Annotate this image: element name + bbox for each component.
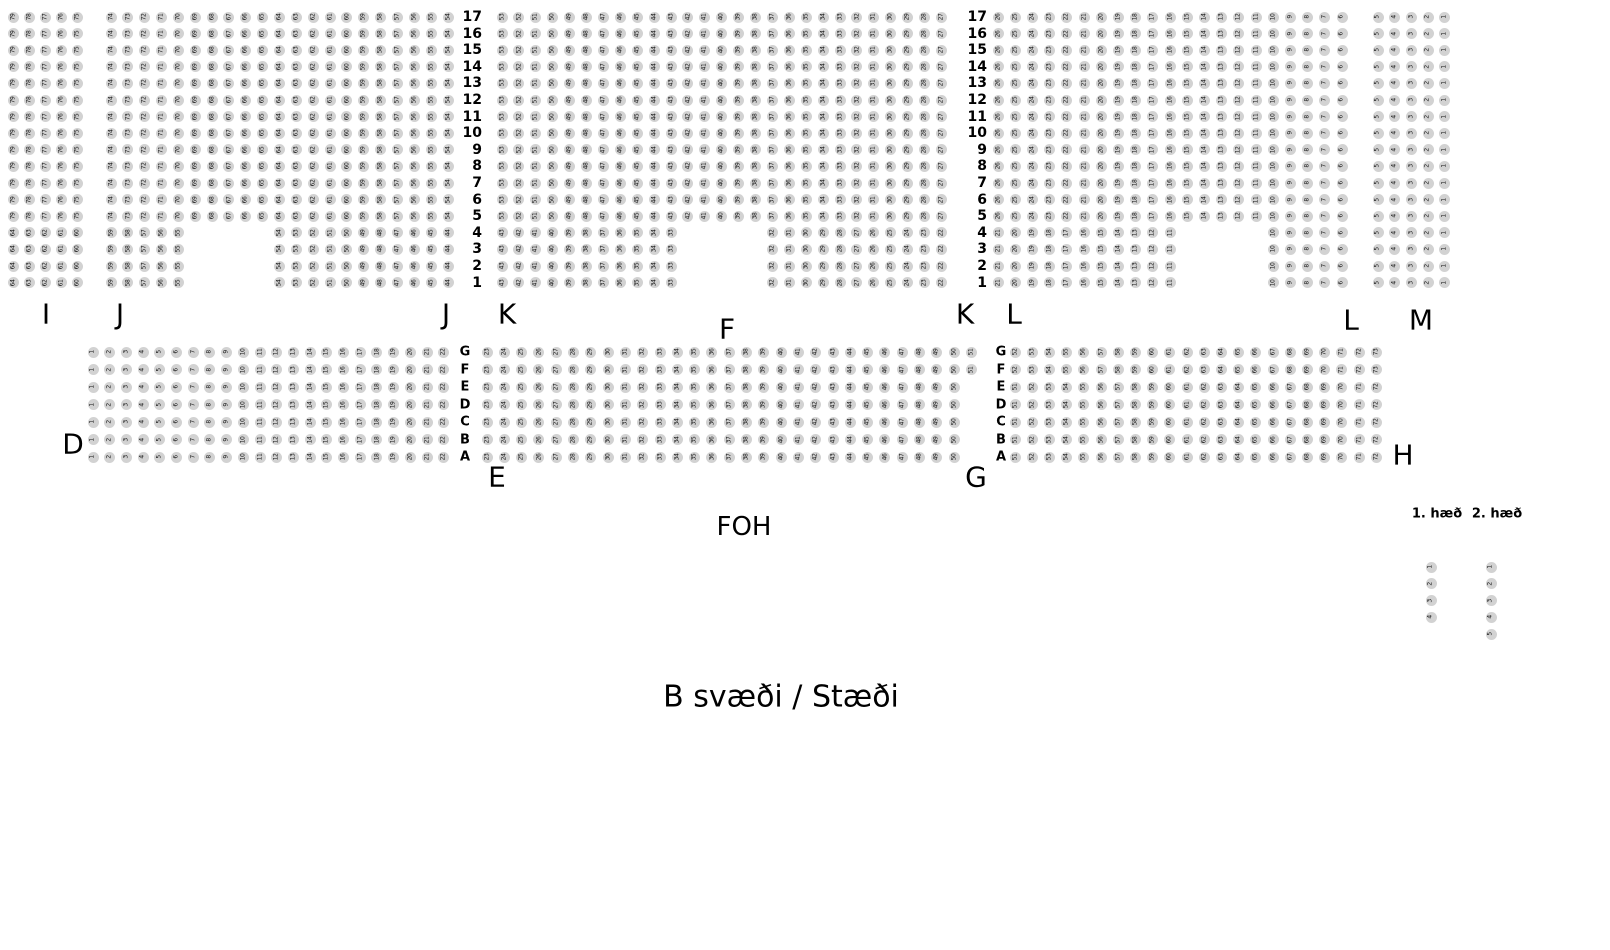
seat-L-24[interactable]: 24: [1027, 144, 1038, 155]
seat-L-21[interactable]: 21: [1079, 61, 1090, 72]
seat-E-40[interactable]: 40: [776, 382, 787, 393]
seat-G-64[interactable]: 64: [1233, 399, 1244, 410]
seat-D-12[interactable]: 12: [271, 347, 282, 358]
seat-E-43[interactable]: 43: [828, 452, 839, 463]
seat-I-64[interactable]: 64: [8, 277, 19, 288]
seat-E-49[interactable]: 49: [931, 417, 942, 428]
seat-J-59[interactable]: 59: [358, 194, 369, 205]
seat-L-18[interactable]: 18: [1130, 61, 1141, 72]
seat-K-39[interactable]: 39: [564, 244, 575, 255]
seat-L-13[interactable]: 13: [1216, 144, 1227, 155]
seat-L-26[interactable]: 26: [993, 161, 1004, 172]
seat-K-29[interactable]: 29: [902, 211, 913, 222]
seat-J-57[interactable]: 57: [392, 144, 403, 155]
seat-I-63[interactable]: 63: [24, 261, 35, 272]
seat-D-21[interactable]: 21: [422, 417, 433, 428]
seat-G-56[interactable]: 56: [1096, 417, 1107, 428]
seat-J-56[interactable]: 56: [156, 227, 167, 238]
seat-L-25[interactable]: 25: [1010, 128, 1021, 139]
seat-E-24[interactable]: 24: [499, 434, 510, 445]
seat-K-34[interactable]: 34: [818, 211, 829, 222]
seat-D-2[interactable]: 2: [104, 417, 115, 428]
seat-M-1[interactable]: 1: [1439, 78, 1450, 89]
seat-K-53[interactable]: 53: [497, 178, 508, 189]
seat-D-9[interactable]: 9: [221, 434, 232, 445]
seat-L-22[interactable]: 22: [1061, 95, 1072, 106]
seat-E-28[interactable]: 28: [568, 382, 579, 393]
seat-L-15[interactable]: 15: [1096, 261, 1107, 272]
seat-J-68[interactable]: 68: [207, 111, 218, 122]
seat-J-63[interactable]: 63: [291, 128, 302, 139]
seat-L-22[interactable]: 22: [1061, 45, 1072, 56]
seat-J-57[interactable]: 57: [392, 95, 403, 106]
seat-J-55[interactable]: 55: [426, 78, 437, 89]
seat-I-60[interactable]: 60: [72, 244, 83, 255]
seat-J-55[interactable]: 55: [426, 194, 437, 205]
seat-K-37[interactable]: 37: [598, 261, 609, 272]
seat-K-25[interactable]: 25: [885, 261, 896, 272]
seat-G-65[interactable]: 65: [1250, 434, 1261, 445]
seat-G-51[interactable]: 51: [1010, 382, 1021, 393]
seat-J-66[interactable]: 66: [240, 61, 251, 72]
seat-J-56[interactable]: 56: [409, 211, 420, 222]
seat-L-10[interactable]: 10: [1268, 61, 1279, 72]
seat-L-20[interactable]: 20: [1096, 95, 1107, 106]
seat-L-22[interactable]: 22: [1061, 28, 1072, 39]
seat-K-27[interactable]: 27: [851, 261, 862, 272]
seat-J-61[interactable]: 61: [325, 194, 336, 205]
seat-K-31[interactable]: 31: [868, 111, 879, 122]
seat-L-8[interactable]: 8: [1302, 144, 1313, 155]
seat-D-22[interactable]: 22: [438, 452, 449, 463]
seat-L-10[interactable]: 10: [1268, 12, 1279, 23]
seat-L-6[interactable]: 6: [1337, 144, 1348, 155]
seat-K-40[interactable]: 40: [716, 194, 727, 205]
seat-I-79[interactable]: 79: [8, 95, 19, 106]
seat-L-26[interactable]: 26: [993, 144, 1004, 155]
seat-L-13[interactable]: 13: [1130, 277, 1141, 288]
seat-L-20[interactable]: 20: [1010, 261, 1021, 272]
seat-E-24[interactable]: 24: [499, 382, 510, 393]
seat-M-1[interactable]: 1: [1439, 211, 1450, 222]
seat-L-9[interactable]: 9: [1285, 111, 1296, 122]
seat-K-28[interactable]: 28: [919, 95, 930, 106]
seat-K-49[interactable]: 49: [564, 211, 575, 222]
seat-E-36[interactable]: 36: [706, 452, 717, 463]
seat-E-31[interactable]: 31: [620, 382, 631, 393]
seat-E-50[interactable]: 50: [949, 452, 960, 463]
seat-I-76[interactable]: 76: [56, 78, 67, 89]
seat-L-14[interactable]: 14: [1199, 128, 1210, 139]
seat-D-22[interactable]: 22: [438, 417, 449, 428]
seat-L-17[interactable]: 17: [1147, 211, 1158, 222]
seat-D-17[interactable]: 17: [355, 452, 366, 463]
seat-L-15[interactable]: 15: [1182, 194, 1193, 205]
seat-L-12[interactable]: 12: [1147, 244, 1158, 255]
seat-J-53[interactable]: 53: [291, 261, 302, 272]
seat-E-39[interactable]: 39: [758, 417, 769, 428]
seat-E-27[interactable]: 27: [551, 417, 562, 428]
seat-E-45[interactable]: 45: [862, 382, 873, 393]
seat-L-26[interactable]: 26: [993, 194, 1004, 205]
seat-D-7[interactable]: 7: [188, 364, 199, 375]
seat-K-50[interactable]: 50: [547, 128, 558, 139]
seat-L-10[interactable]: 10: [1268, 28, 1279, 39]
seat-K-32[interactable]: 32: [851, 144, 862, 155]
seat-E-25[interactable]: 25: [516, 399, 527, 410]
seat-K-40[interactable]: 40: [547, 261, 558, 272]
seat-K-43[interactable]: 43: [497, 227, 508, 238]
seat-L-15[interactable]: 15: [1182, 61, 1193, 72]
seat-K-46[interactable]: 46: [615, 12, 626, 23]
seat-J-70[interactable]: 70: [173, 61, 184, 72]
seat-K-36[interactable]: 36: [784, 111, 795, 122]
seat-J-70[interactable]: 70: [173, 45, 184, 56]
seat-I-78[interactable]: 78: [24, 111, 35, 122]
seat-L-22[interactable]: 22: [1061, 144, 1072, 155]
seat-L-11[interactable]: 11: [1251, 144, 1262, 155]
seat-K-48[interactable]: 48: [581, 211, 592, 222]
seat-M-2[interactable]: 2: [1423, 261, 1434, 272]
seat-J-63[interactable]: 63: [291, 61, 302, 72]
seat-G-63[interactable]: 63: [1216, 417, 1227, 428]
seat-J-59[interactable]: 59: [358, 12, 369, 23]
seat-K-48[interactable]: 48: [581, 178, 592, 189]
seat-K-47[interactable]: 47: [598, 28, 609, 39]
seat-D-7[interactable]: 7: [188, 452, 199, 463]
seat-L-23[interactable]: 23: [1044, 128, 1055, 139]
seat-E-32[interactable]: 32: [637, 434, 648, 445]
seat-J-72[interactable]: 72: [139, 211, 150, 222]
seat-E-44[interactable]: 44: [845, 347, 856, 358]
seat-G-53[interactable]: 53: [1044, 417, 1055, 428]
seat-J-55[interactable]: 55: [426, 61, 437, 72]
seat-J-73[interactable]: 73: [122, 61, 133, 72]
seat-K-50[interactable]: 50: [547, 12, 558, 23]
seat-G-69[interactable]: 69: [1319, 417, 1330, 428]
seat-L-8[interactable]: 8: [1302, 78, 1313, 89]
seat-G-61[interactable]: 61: [1182, 434, 1193, 445]
seat-L-6[interactable]: 6: [1337, 194, 1348, 205]
seat-K-52[interactable]: 52: [513, 28, 524, 39]
seat-J-62[interactable]: 62: [308, 12, 319, 23]
seat-K-46[interactable]: 46: [615, 45, 626, 56]
seat-J-57[interactable]: 57: [392, 178, 403, 189]
seat-J-46[interactable]: 46: [409, 277, 420, 288]
seat-D-4[interactable]: 4: [138, 347, 149, 358]
seat-J-59[interactable]: 59: [358, 128, 369, 139]
seat-J-57[interactable]: 57: [392, 161, 403, 172]
seat-K-30[interactable]: 30: [885, 61, 896, 72]
seat-J-56[interactable]: 56: [156, 261, 167, 272]
seat-G-55[interactable]: 55: [1078, 452, 1089, 463]
seat-J-54[interactable]: 54: [274, 261, 285, 272]
seat-L-11[interactable]: 11: [1251, 111, 1262, 122]
seat-G-69[interactable]: 69: [1319, 452, 1330, 463]
seat-M-1[interactable]: 1: [1439, 45, 1450, 56]
seat-D-5[interactable]: 5: [154, 417, 165, 428]
seat-J-59[interactable]: 59: [106, 227, 117, 238]
seat-E-31[interactable]: 31: [620, 417, 631, 428]
seat-D-3[interactable]: 3: [121, 452, 132, 463]
seat-K-31[interactable]: 31: [868, 194, 879, 205]
seat-G-64[interactable]: 64: [1233, 434, 1244, 445]
seat-K-36[interactable]: 36: [615, 261, 626, 272]
seat-J-63[interactable]: 63: [291, 45, 302, 56]
seat-L-14[interactable]: 14: [1199, 45, 1210, 56]
seat-J-55[interactable]: 55: [426, 144, 437, 155]
seat-J-64[interactable]: 64: [274, 95, 285, 106]
seat-M-4[interactable]: 4: [1389, 227, 1400, 238]
seat-G-57[interactable]: 57: [1113, 382, 1124, 393]
seat-L-21[interactable]: 21: [1079, 95, 1090, 106]
seat-K-28[interactable]: 28: [919, 194, 930, 205]
seat-J-55[interactable]: 55: [426, 45, 437, 56]
seat-K-34[interactable]: 34: [818, 61, 829, 72]
seat-J-73[interactable]: 73: [122, 144, 133, 155]
seat-J-56[interactable]: 56: [409, 95, 420, 106]
seat-E-39[interactable]: 39: [758, 347, 769, 358]
seat-D-5[interactable]: 5: [154, 382, 165, 393]
seat-L-9[interactable]: 9: [1285, 244, 1296, 255]
seat-E-24[interactable]: 24: [499, 347, 510, 358]
seat-L-13[interactable]: 13: [1216, 28, 1227, 39]
seat-K-27[interactable]: 27: [851, 277, 862, 288]
seat-K-40[interactable]: 40: [547, 277, 558, 288]
seat-L-19[interactable]: 19: [1113, 78, 1124, 89]
seat-D-12[interactable]: 12: [271, 434, 282, 445]
seat-E-36[interactable]: 36: [706, 399, 717, 410]
seat-K-45[interactable]: 45: [632, 178, 643, 189]
seat-J-73[interactable]: 73: [122, 95, 133, 106]
seat-G-68[interactable]: 68: [1302, 452, 1313, 463]
seat-G-71[interactable]: 71: [1354, 382, 1365, 393]
seat-K-29[interactable]: 29: [902, 12, 913, 23]
seat-E-47[interactable]: 47: [897, 364, 908, 375]
seat-J-62[interactable]: 62: [308, 194, 319, 205]
seat-E-49[interactable]: 49: [931, 382, 942, 393]
seat-L-9[interactable]: 9: [1285, 144, 1296, 155]
seat-J-69[interactable]: 69: [190, 12, 201, 23]
seat-G-60[interactable]: 60: [1164, 399, 1175, 410]
seat-D-19[interactable]: 19: [388, 382, 399, 393]
seat-J-56[interactable]: 56: [409, 28, 420, 39]
seat-K-42[interactable]: 42: [682, 78, 693, 89]
seat-J-54[interactable]: 54: [274, 227, 285, 238]
seat-J-58[interactable]: 58: [375, 144, 386, 155]
seat-D-2[interactable]: 2: [104, 399, 115, 410]
seat-M-4[interactable]: 4: [1389, 178, 1400, 189]
seat-K-40[interactable]: 40: [716, 45, 727, 56]
seat-K-34[interactable]: 34: [818, 78, 829, 89]
seat-K-35[interactable]: 35: [801, 78, 812, 89]
seat-L-6[interactable]: 6: [1337, 128, 1348, 139]
seat-J-54[interactable]: 54: [443, 128, 454, 139]
seat-L-18[interactable]: 18: [1130, 178, 1141, 189]
seat-E-37[interactable]: 37: [724, 364, 735, 375]
seat-G-52[interactable]: 52: [1010, 347, 1021, 358]
seat-J-62[interactable]: 62: [308, 211, 319, 222]
seat-E-40[interactable]: 40: [776, 399, 787, 410]
seat-K-27[interactable]: 27: [936, 61, 947, 72]
seat-G-66[interactable]: 66: [1268, 399, 1279, 410]
seat-J-49[interactable]: 49: [358, 227, 369, 238]
seat-G-65[interactable]: 65: [1250, 417, 1261, 428]
seat-J-50[interactable]: 50: [341, 261, 352, 272]
seat-J-59[interactable]: 59: [358, 144, 369, 155]
seat-K-34[interactable]: 34: [818, 12, 829, 23]
seat-J-63[interactable]: 63: [291, 78, 302, 89]
seat-L-24[interactable]: 24: [1027, 78, 1038, 89]
seat-E-38[interactable]: 38: [741, 364, 752, 375]
seat-L-18[interactable]: 18: [1130, 144, 1141, 155]
seat-J-74[interactable]: 74: [106, 12, 117, 23]
seat-J-70[interactable]: 70: [173, 95, 184, 106]
seat-K-34[interactable]: 34: [649, 244, 660, 255]
seat-I-78[interactable]: 78: [24, 144, 35, 155]
seat-L-16[interactable]: 16: [1079, 261, 1090, 272]
seat-L-14[interactable]: 14: [1199, 12, 1210, 23]
seat-E-31[interactable]: 31: [620, 364, 631, 375]
seat-K-50[interactable]: 50: [547, 161, 558, 172]
seat-E-24[interactable]: 24: [499, 417, 510, 428]
seat-L-18[interactable]: 18: [1130, 12, 1141, 23]
seat-K-35[interactable]: 35: [801, 95, 812, 106]
seat-K-46[interactable]: 46: [615, 178, 626, 189]
seat-E-43[interactable]: 43: [828, 364, 839, 375]
seat-I-76[interactable]: 76: [56, 12, 67, 23]
seat-J-56[interactable]: 56: [409, 12, 420, 23]
seat-M-4[interactable]: 4: [1389, 45, 1400, 56]
seat-L-16[interactable]: 16: [1079, 277, 1090, 288]
seat-J-65[interactable]: 65: [257, 95, 268, 106]
seat-J-61[interactable]: 61: [325, 178, 336, 189]
seat-D-6[interactable]: 6: [171, 434, 182, 445]
seat-J-59[interactable]: 59: [106, 244, 117, 255]
seat-K-49[interactable]: 49: [564, 111, 575, 122]
seat-L-9[interactable]: 9: [1285, 277, 1296, 288]
seat-D-15[interactable]: 15: [321, 399, 332, 410]
seat-J-52[interactable]: 52: [308, 244, 319, 255]
seat-K-48[interactable]: 48: [581, 12, 592, 23]
seat-K-23[interactable]: 23: [919, 227, 930, 238]
seat-J-65[interactable]: 65: [257, 12, 268, 23]
seat-M-3[interactable]: 3: [1406, 178, 1417, 189]
seat-L-6[interactable]: 6: [1337, 178, 1348, 189]
seat-K-32[interactable]: 32: [851, 28, 862, 39]
seat-L-19[interactable]: 19: [1113, 95, 1124, 106]
seat-K-43[interactable]: 43: [666, 178, 677, 189]
seat-K-32[interactable]: 32: [851, 111, 862, 122]
seat-E-47[interactable]: 47: [897, 382, 908, 393]
seat-J-64[interactable]: 64: [274, 12, 285, 23]
seat-J-47[interactable]: 47: [392, 227, 403, 238]
seat-L-18[interactable]: 18: [1130, 161, 1141, 172]
seat-2h-1[interactable]: 1: [1486, 562, 1497, 573]
seat-J-73[interactable]: 73: [122, 28, 133, 39]
seat-K-43[interactable]: 43: [666, 61, 677, 72]
seat-J-56[interactable]: 56: [409, 178, 420, 189]
seat-I-79[interactable]: 79: [8, 178, 19, 189]
seat-L-23[interactable]: 23: [1044, 111, 1055, 122]
seat-G-63[interactable]: 63: [1216, 382, 1227, 393]
seat-K-27[interactable]: 27: [936, 28, 947, 39]
seat-M-5[interactable]: 5: [1373, 277, 1384, 288]
seat-L-6[interactable]: 6: [1337, 244, 1348, 255]
seat-K-36[interactable]: 36: [784, 161, 795, 172]
seat-E-23[interactable]: 23: [482, 434, 493, 445]
seat-I-76[interactable]: 76: [56, 95, 67, 106]
seat-D-19[interactable]: 19: [388, 434, 399, 445]
seat-L-19[interactable]: 19: [1027, 277, 1038, 288]
seat-J-61[interactable]: 61: [325, 211, 336, 222]
seat-D-8[interactable]: 8: [204, 399, 215, 410]
seat-G-55[interactable]: 55: [1078, 434, 1089, 445]
seat-L-16[interactable]: 16: [1165, 45, 1176, 56]
seat-I-75[interactable]: 75: [72, 144, 83, 155]
seat-E-48[interactable]: 48: [914, 399, 925, 410]
seat-K-36[interactable]: 36: [784, 61, 795, 72]
seat-K-29[interactable]: 29: [902, 45, 913, 56]
seat-K-41[interactable]: 41: [530, 244, 541, 255]
seat-L-13[interactable]: 13: [1216, 111, 1227, 122]
seat-L-9[interactable]: 9: [1285, 78, 1296, 89]
seat-E-30[interactable]: 30: [603, 434, 614, 445]
seat-K-33[interactable]: 33: [835, 128, 846, 139]
seat-L-20[interactable]: 20: [1096, 128, 1107, 139]
seat-J-70[interactable]: 70: [173, 144, 184, 155]
seat-E-50[interactable]: 50: [949, 399, 960, 410]
seat-I-77[interactable]: 77: [40, 178, 51, 189]
seat-J-69[interactable]: 69: [190, 111, 201, 122]
seat-L-8[interactable]: 8: [1302, 277, 1313, 288]
seat-D-14[interactable]: 14: [305, 364, 316, 375]
seat-K-46[interactable]: 46: [615, 194, 626, 205]
seat-I-77[interactable]: 77: [40, 61, 51, 72]
seat-G-68[interactable]: 68: [1285, 364, 1296, 375]
seat-J-63[interactable]: 63: [291, 194, 302, 205]
seat-K-46[interactable]: 46: [615, 128, 626, 139]
seat-L-21[interactable]: 21: [1079, 144, 1090, 155]
seat-D-13[interactable]: 13: [288, 364, 299, 375]
seat-J-68[interactable]: 68: [207, 211, 218, 222]
seat-L-9[interactable]: 9: [1285, 45, 1296, 56]
seat-E-35[interactable]: 35: [689, 347, 700, 358]
seat-K-30[interactable]: 30: [885, 144, 896, 155]
seat-J-63[interactable]: 63: [291, 28, 302, 39]
seat-K-48[interactable]: 48: [581, 161, 592, 172]
seat-K-43[interactable]: 43: [666, 12, 677, 23]
seat-E-51[interactable]: 51: [966, 347, 977, 358]
seat-E-29[interactable]: 29: [585, 399, 596, 410]
seat-K-44[interactable]: 44: [649, 128, 660, 139]
seat-D-4[interactable]: 4: [138, 399, 149, 410]
seat-J-63[interactable]: 63: [291, 95, 302, 106]
seat-G-63[interactable]: 63: [1216, 399, 1227, 410]
seat-G-65[interactable]: 65: [1233, 364, 1244, 375]
seat-K-47[interactable]: 47: [598, 12, 609, 23]
seat-J-71[interactable]: 71: [156, 12, 167, 23]
seat-L-15[interactable]: 15: [1182, 178, 1193, 189]
seat-I-61[interactable]: 61: [56, 244, 67, 255]
seat-L-15[interactable]: 15: [1182, 45, 1193, 56]
seat-G-68[interactable]: 68: [1302, 417, 1313, 428]
seat-J-62[interactable]: 62: [308, 178, 319, 189]
seat-G-69[interactable]: 69: [1302, 347, 1313, 358]
seat-L-11[interactable]: 11: [1251, 61, 1262, 72]
seat-K-44[interactable]: 44: [649, 78, 660, 89]
seat-E-25[interactable]: 25: [516, 364, 527, 375]
